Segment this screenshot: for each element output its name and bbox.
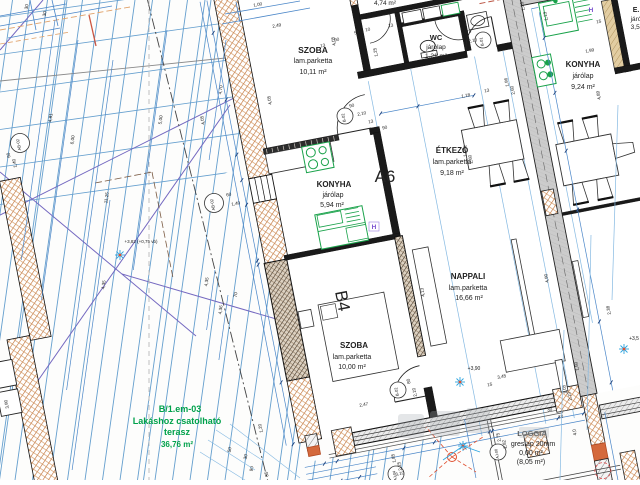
svg-text:lam.parketta: lam.parketta — [433, 159, 472, 166]
svg-text:járólap: járólap — [571, 73, 593, 80]
svg-text:(8,05 m²): (8,05 m²) — [517, 459, 545, 466]
svg-text:4,74 m²: 4,74 m² — [374, 0, 397, 7]
svg-text:lam.parketta: lam.parketta — [333, 354, 372, 361]
svg-text:9,24 m²: 9,24 m² — [571, 84, 595, 91]
svg-text:járó: járó — [630, 16, 640, 23]
svg-text:járólap: járólap — [321, 192, 343, 199]
svg-text:16,66 m²: 16,66 m² — [455, 295, 483, 302]
svg-text:10,00 m²: 10,00 m² — [338, 364, 366, 371]
svg-text:KONYHA: KONYHA — [317, 180, 352, 189]
svg-text:H: H — [372, 224, 377, 231]
svg-text:NAPPALI: NAPPALI — [451, 272, 486, 281]
svg-text:B4: B4 — [331, 289, 354, 313]
svg-text:10,11 m²: 10,11 m² — [299, 69, 327, 76]
svg-text:KONYHA: KONYHA — [566, 60, 601, 69]
svg-text:B/1.em-03: B/1.em-03 — [159, 404, 202, 414]
svg-text:lam.parketta: lam.parketta — [294, 58, 333, 65]
svg-text:3,51: 3,51 — [631, 24, 640, 31]
svg-text:lam.parketta: lam.parketta — [449, 285, 488, 292]
svg-text:9,18 m²: 9,18 m² — [440, 170, 464, 177]
svg-text:5,94 m²: 5,94 m² — [320, 202, 344, 209]
svg-text:SZOBA: SZOBA — [340, 341, 368, 350]
svg-text:A6: A6 — [375, 167, 396, 186]
svg-text:E.: E. — [633, 7, 640, 14]
svg-text:terasz: terasz — [164, 427, 191, 437]
svg-text:H: H — [589, 7, 594, 14]
svg-text:1,21 m²: 1,21 m² — [425, 53, 448, 60]
svg-text:+3,5: +3,5 — [629, 336, 639, 342]
svg-text:Lakáshoz csatolható: Lakáshoz csatolható — [133, 416, 222, 426]
svg-text:0,00 m²: 0,00 m² — [519, 450, 543, 457]
svg-text:+3,82 (+0,75 vb): +3,82 (+0,75 vb) — [124, 239, 158, 244]
svg-text:járólap: járólap — [425, 44, 446, 51]
svg-text:36,76 m²: 36,76 m² — [161, 440, 193, 449]
svg-text:WC: WC — [430, 33, 443, 42]
svg-text:+3,90: +3,90 — [468, 366, 481, 372]
svg-text:greslap 20mm: greslap 20mm — [511, 441, 556, 448]
